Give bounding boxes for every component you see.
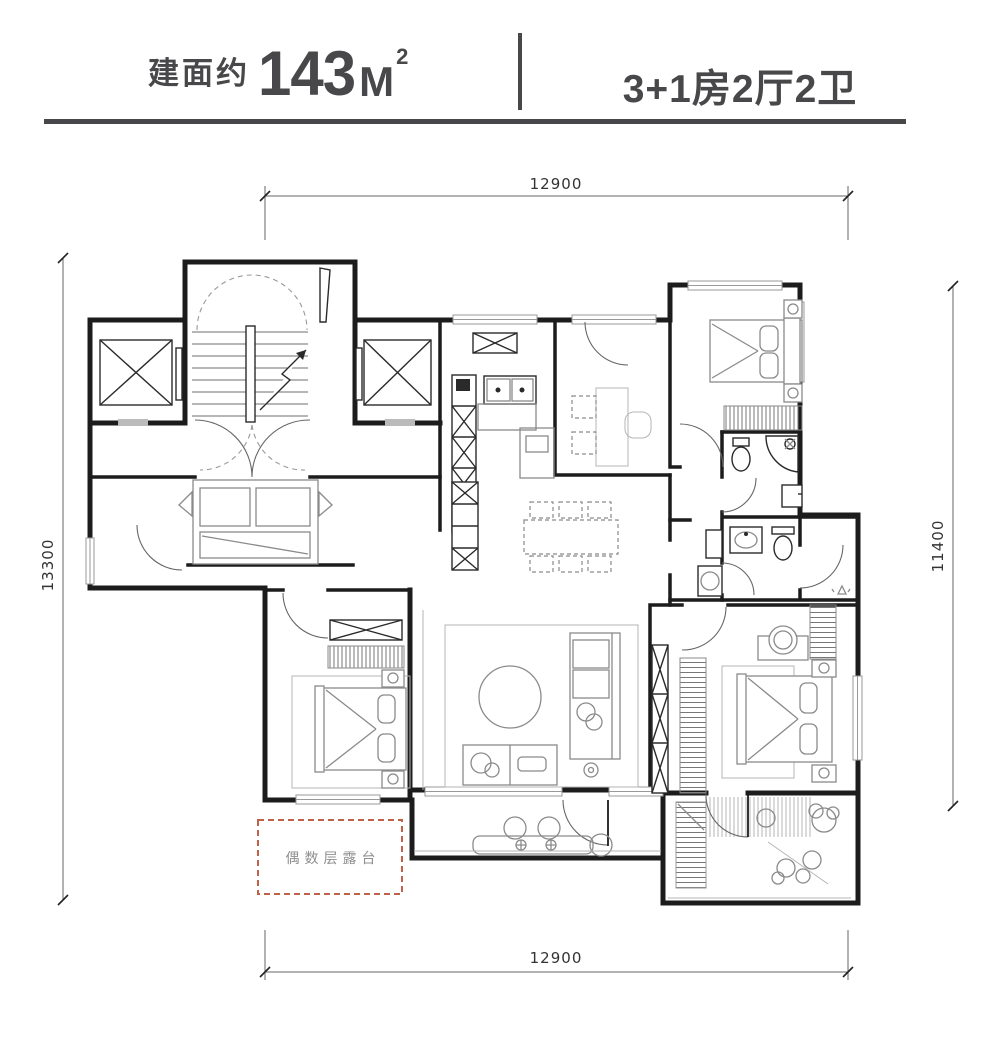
shower-room [800, 545, 850, 594]
dim-left-value: 13300 [39, 539, 57, 592]
main-bathroom [722, 527, 794, 595]
dim-bottom: 12900 [260, 930, 853, 980]
study-room [572, 322, 651, 466]
elevator-right [356, 340, 431, 426]
terrace-label: 偶数层露台 [286, 850, 381, 866]
ensuite-bathroom [722, 436, 802, 512]
bedroom-left [283, 593, 423, 790]
floorplan-page: 建面约 143 M 2 3+1房2厅2卫 [0, 0, 1000, 1039]
dim-right-value: 11400 [929, 520, 947, 573]
entry-foyer [137, 420, 332, 570]
living-room [445, 625, 638, 846]
floorplan-drawing: 偶数层露台 12900 12900 13300 11400 [0, 0, 1000, 1039]
staircase [192, 268, 330, 470]
dim-bottom-value: 12900 [530, 949, 583, 967]
balcony-master [668, 794, 851, 898]
dim-left: 13300 [39, 253, 68, 905]
elevator-left [100, 340, 182, 426]
laundry-nook [698, 530, 722, 596]
dim-top: 12900 [260, 175, 853, 240]
dining-area [452, 482, 618, 572]
dim-top-value: 12900 [530, 175, 583, 193]
balcony-living [414, 817, 661, 856]
dim-right: 11400 [929, 281, 958, 811]
bedroom-master [652, 605, 836, 793]
terrace-area: 偶数层露台 [258, 820, 402, 894]
